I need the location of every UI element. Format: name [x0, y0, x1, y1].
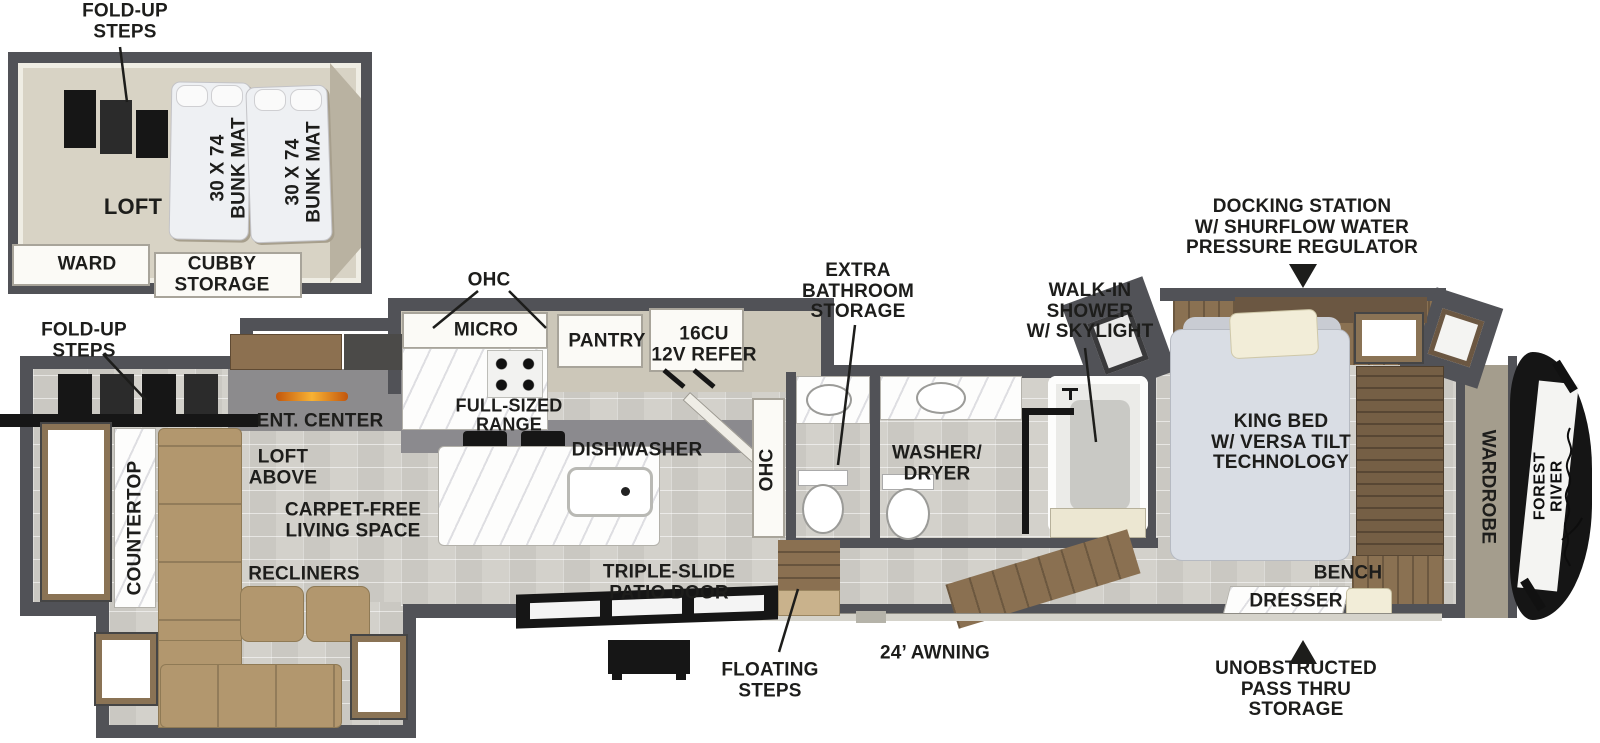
loft-wall-right — [361, 52, 372, 294]
living-slide-window-left — [96, 634, 156, 704]
label-docking-station: DOCKING STATION W/ SHURFLOW WATER PRESSU… — [1186, 197, 1418, 259]
loft-step-3 — [136, 110, 168, 158]
patio-door-pane — [530, 601, 600, 619]
bedroom-closet — [1356, 366, 1444, 558]
label-range: FULL-SIZED RANGE — [456, 397, 563, 436]
loft-wall-top — [8, 52, 372, 63]
recliner-right — [306, 586, 370, 642]
label-pantry: PANTRY — [568, 332, 645, 353]
bunk-pillow — [176, 85, 208, 107]
loft-step-1 — [64, 90, 96, 148]
utility-sink — [916, 382, 966, 414]
bunk-pillow — [211, 85, 243, 107]
shower-glass-return — [1022, 408, 1074, 415]
recliner-left — [240, 586, 304, 642]
island-sink — [567, 467, 653, 517]
entcenter-wall-top — [240, 318, 401, 331]
shower-glass-panel — [1022, 408, 1029, 534]
label-recliners: RECLINERS — [248, 565, 360, 586]
living-window-left — [42, 424, 110, 600]
bedroom-slide-window — [1356, 314, 1422, 362]
sofa-bottom — [160, 664, 342, 728]
living-wall-left — [20, 356, 33, 616]
label-pass-thru: UNOBSTRUCTED PASS THRU STORAGE — [1215, 659, 1377, 721]
floating-steps-landing — [778, 590, 840, 616]
kitchen-slide-wall-top — [388, 298, 834, 311]
living-step-rail — [0, 414, 258, 427]
fireplace-glow — [276, 392, 348, 401]
ent-center-cabinet — [230, 334, 342, 370]
exterior-step-leg — [612, 674, 622, 680]
bath-wall-divider — [870, 372, 880, 548]
label-wardrobe: WARDROBE — [1477, 430, 1498, 545]
label-fold-up-steps-left: FOLD-UP STEPS — [41, 320, 127, 361]
label-king-bed: KING BED W/ VERSA TILT TECHNOLOGY — [1211, 412, 1351, 474]
label-extra-bathroom-storage: EXTRA BATHROOM STORAGE — [802, 261, 914, 323]
halfbath-sink — [806, 384, 852, 416]
label-cubby-storage: CUBBY STORAGE — [174, 254, 269, 295]
label-refer: 16CU 12V REFER — [651, 324, 756, 365]
label-ward: WARD — [58, 255, 117, 276]
label-bunk-mat-left: 30 X 74 BUNK MAT — [208, 117, 249, 219]
ent-center-hood — [344, 334, 410, 370]
label-micro: MICRO — [454, 321, 518, 342]
floating-steps-wood — [778, 540, 840, 592]
awning-bracket — [856, 611, 886, 623]
living-slide-window-right — [352, 636, 406, 718]
sink-faucet — [621, 487, 630, 496]
label-dishwasher: DISHWASHER — [572, 441, 703, 462]
label-patio-door: TRIPLE-SLIDE PATIO DOOR — [603, 562, 735, 603]
label-dresser: DRESSER — [1249, 592, 1342, 613]
label-carpet-free: CARPET-FREE LIVING SPACE — [285, 500, 421, 541]
bedroom-wing-right-window — [1428, 308, 1485, 367]
living-wall-bottomleft — [20, 602, 108, 616]
label-ohc-kitchen: OHC — [468, 271, 511, 292]
label-awning: 24’ AWNING — [880, 644, 990, 665]
exterior-step — [608, 640, 690, 674]
label-brand: FOREST RIVER — [1532, 452, 1567, 521]
label-floating-steps: FLOATING STEPS — [721, 660, 818, 701]
label-loft-above: LOFT ABOVE — [249, 447, 318, 488]
shower-interior — [1070, 400, 1130, 510]
utility-toilet — [886, 488, 930, 540]
loft-step-2 — [100, 100, 132, 154]
range-cooktop — [487, 350, 543, 398]
bunk-pillow — [254, 89, 286, 111]
loft-end-wall — [330, 63, 361, 283]
label-washer-dryer: WASHER/ DRYER — [892, 443, 982, 484]
shower-head-mark — [1069, 388, 1072, 400]
label-countertop: COUNTERTOP — [126, 461, 147, 596]
label-fold-up-steps-top: FOLD-UP STEPS — [82, 1, 168, 42]
bath-wall-left — [786, 372, 796, 548]
label-ohc-island: OHC — [758, 449, 779, 492]
label-bench: BENCH — [1314, 564, 1383, 585]
label-walk-in-shower: WALK-IN SHOWER W/ SKYLIGHT — [1027, 281, 1154, 343]
docking-arrow-down-icon — [1289, 264, 1317, 288]
floorplan-canvas: FOLD-UP STEPS LOFT 30 X 74 BUNK MAT 30 X… — [0, 0, 1600, 743]
wardrobe-wall-left — [1456, 356, 1465, 618]
exterior-step-leg — [676, 674, 686, 680]
bunk-pillow — [290, 89, 322, 111]
bed-pillow — [1229, 309, 1319, 360]
bath-cabinet — [1050, 508, 1146, 538]
label-bunk-mat-right: 30 X 74 BUNK MAT — [283, 121, 324, 223]
label-ent-center: ENT. CENTER — [257, 412, 384, 433]
label-loft: LOFT — [104, 195, 162, 219]
halfbath-toilet — [802, 484, 844, 534]
